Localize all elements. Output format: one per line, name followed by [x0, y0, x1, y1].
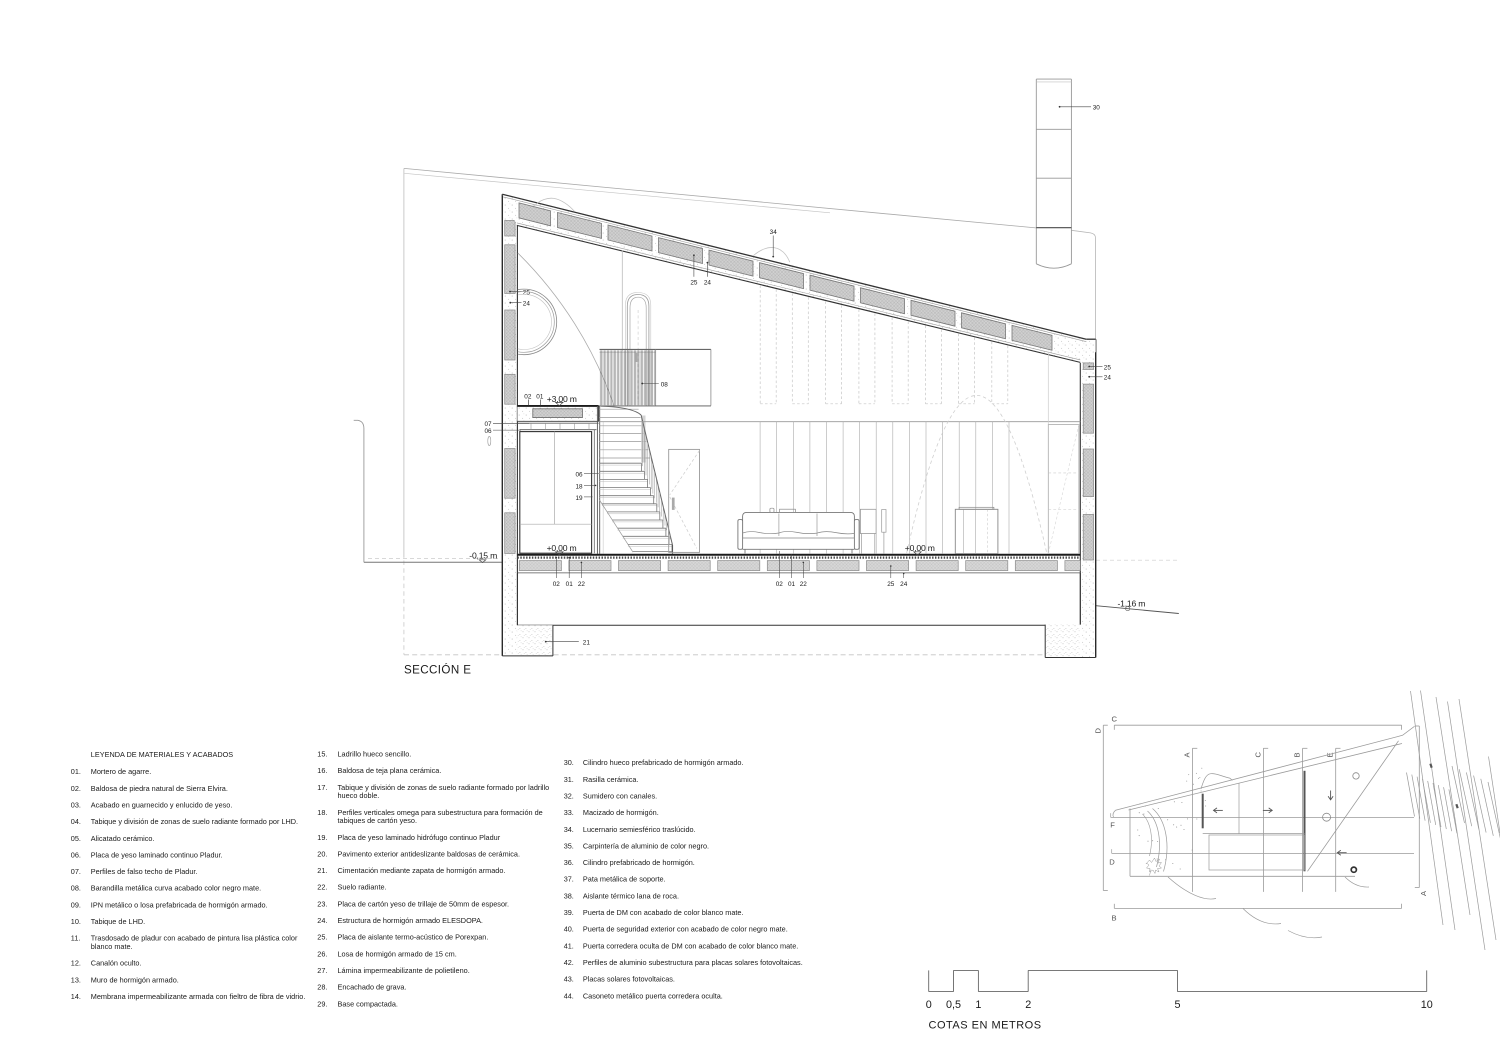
- svg-text:25: 25: [523, 289, 531, 296]
- svg-text:22: 22: [578, 581, 586, 588]
- svg-text:Sumidero con canales.: Sumidero con canales.: [583, 792, 657, 801]
- svg-text:Pata metálica de soporte.: Pata metálica de soporte.: [583, 875, 666, 884]
- svg-text:C: C: [1112, 715, 1118, 724]
- svg-text:40.: 40.: [564, 925, 574, 934]
- svg-text:19.: 19.: [317, 833, 327, 842]
- svg-text:03.: 03.: [71, 801, 81, 810]
- svg-text:Puerta de seguridad exterior c: Puerta de seguridad exterior con acabado…: [583, 925, 788, 934]
- svg-text:Suelo radiante.: Suelo radiante.: [338, 883, 387, 892]
- svg-text:Cilindro hueco prefabricado de: Cilindro hueco prefabricado de hormigón …: [583, 758, 744, 767]
- svg-text:D: D: [1094, 728, 1103, 734]
- svg-text:Muro de hormigón armado.: Muro de hormigón armado.: [91, 975, 179, 984]
- svg-text:21: 21: [583, 640, 591, 647]
- svg-text:Tabique y división de zonas de: Tabique y división de zonas de suelo rad…: [91, 817, 298, 826]
- svg-text:Perfiles de falso techo de Pla: Perfiles de falso techo de Pladur.: [91, 867, 198, 876]
- svg-text:30.: 30.: [564, 758, 574, 767]
- svg-text:44.: 44.: [564, 991, 574, 1000]
- svg-text:01: 01: [566, 581, 574, 588]
- svg-text:COTAS EN METROS: COTAS EN METROS: [929, 1020, 1042, 1032]
- svg-text:10.: 10.: [71, 917, 81, 926]
- svg-text:1: 1: [975, 999, 981, 1011]
- svg-text:Losa de hormigón armado de 15: Losa de hormigón armado de 15 cm.: [338, 949, 457, 958]
- svg-text:24: 24: [704, 279, 712, 286]
- svg-text:C: C: [1253, 752, 1262, 758]
- svg-text:09.: 09.: [71, 900, 81, 909]
- svg-text:24: 24: [900, 581, 908, 588]
- svg-text:02: 02: [553, 581, 561, 588]
- svg-text:04.: 04.: [71, 817, 81, 826]
- svg-text:Puerta corredera oculta de DM: Puerta corredera oculta de DM con acabad…: [583, 941, 798, 950]
- svg-text:Carpintería de aluminio de col: Carpintería de aluminio de color negro.: [583, 841, 709, 850]
- svg-text:22.: 22.: [317, 883, 327, 892]
- svg-text:28.: 28.: [317, 983, 327, 992]
- svg-text:Base compactada.: Base compactada.: [338, 999, 398, 1008]
- svg-text:Baldosa de teja plana cerámica: Baldosa de teja plana cerámica.: [338, 766, 442, 775]
- svg-text:Placa de yeso laminado hidrófu: Placa de yeso laminado hidrófugo continu…: [338, 833, 501, 842]
- svg-text:Membrana impermeabilizante arm: Membrana impermeabilizante armada con fi…: [91, 992, 306, 1001]
- svg-text:21.: 21.: [317, 866, 327, 875]
- svg-text:2: 2: [1025, 999, 1031, 1011]
- svg-text:13.: 13.: [71, 975, 81, 984]
- svg-text:17.: 17.: [317, 783, 327, 792]
- svg-text:39.: 39.: [564, 908, 574, 917]
- svg-text:25: 25: [1104, 364, 1112, 371]
- svg-text:01.: 01.: [71, 767, 81, 776]
- svg-text:Encachado de grava.: Encachado de grava.: [338, 983, 407, 992]
- svg-text:Mortero de agarre.: Mortero de agarre.: [91, 767, 151, 776]
- svg-text:22: 22: [800, 581, 808, 588]
- svg-text:Estructura de hormigón armado: Estructura de hormigón armado ELESDOPA.: [338, 916, 483, 925]
- svg-text:Pavimento exterior antidesliza: Pavimento exterior antideslizante baldos…: [338, 849, 521, 858]
- svg-text:Macizado de hormigón.: Macizado de hormigón.: [583, 808, 659, 817]
- svg-text:26.: 26.: [317, 949, 327, 958]
- svg-text:34: 34: [770, 229, 778, 236]
- svg-text:01: 01: [788, 581, 796, 588]
- svg-text:Placas solares fotovoltaicas.: Placas solares fotovoltaicas.: [583, 975, 675, 984]
- svg-text:Alicatado cerámico.: Alicatado cerámico.: [91, 834, 155, 843]
- svg-text:IPN metálico o losa prefabrica: IPN metálico o losa prefabricada de horm…: [91, 900, 268, 909]
- svg-text:-1,16 m: -1,16 m: [1118, 599, 1146, 609]
- svg-text:15.: 15.: [317, 750, 327, 759]
- svg-text:tabiques de cartón yeso.: tabiques de cartón yeso.: [338, 816, 418, 825]
- svg-text:27.: 27.: [317, 966, 327, 975]
- svg-text:02: 02: [776, 581, 784, 588]
- svg-text:B: B: [1293, 752, 1302, 757]
- svg-text:20.: 20.: [317, 849, 327, 858]
- svg-text:Casoneto metálico puerta corre: Casoneto metálico puerta corredera ocult…: [583, 991, 723, 1000]
- svg-text:F: F: [1110, 821, 1115, 830]
- svg-text:08.: 08.: [71, 884, 81, 893]
- svg-text:Canalón oculto.: Canalón oculto.: [91, 959, 142, 968]
- svg-text:19: 19: [575, 495, 583, 502]
- svg-text:10: 10: [1421, 999, 1433, 1011]
- svg-text:D: D: [1109, 858, 1115, 867]
- svg-text:SECCIÓN E: SECCIÓN E: [404, 664, 471, 677]
- svg-text:33.: 33.: [564, 808, 574, 817]
- svg-text:Baldosa de piedra natural de S: Baldosa de piedra natural de Sierra Elvi…: [91, 784, 228, 793]
- svg-text:Lámina impermeabilizante de po: Lámina impermeabilizante de polietileno.: [338, 966, 470, 975]
- svg-text:41.: 41.: [564, 941, 574, 950]
- svg-text:LEYENDA DE MATERIALES Y ACABAD: LEYENDA DE MATERIALES Y ACABADOS: [91, 750, 233, 759]
- svg-text:18: 18: [575, 483, 583, 490]
- svg-text:hueco doble.: hueco doble.: [338, 791, 380, 800]
- svg-text:Perfiles de aluminio subestruc: Perfiles de aluminio subestructura para …: [583, 958, 803, 967]
- svg-text:24.: 24.: [317, 916, 327, 925]
- svg-text:Puerta de DM con acabado de co: Puerta de DM con acabado de color blanco…: [583, 908, 744, 917]
- svg-text:Cimentación mediante zapata de: Cimentación mediante zapata de hormigón …: [338, 866, 506, 875]
- svg-text:30: 30: [1093, 105, 1101, 112]
- svg-text:42.: 42.: [564, 958, 574, 967]
- svg-text:11.: 11.: [71, 934, 81, 943]
- svg-text:5: 5: [1174, 999, 1180, 1011]
- svg-text:-0,15 m: -0,15 m: [469, 551, 497, 561]
- svg-text:14.: 14.: [71, 992, 81, 1001]
- svg-text:25: 25: [690, 279, 698, 286]
- svg-text:16.: 16.: [317, 766, 327, 775]
- svg-text:Placa de aislante termo-acústi: Placa de aislante termo-acústico de Pore…: [338, 933, 489, 942]
- svg-text:02: 02: [524, 394, 532, 401]
- svg-text:12.: 12.: [71, 959, 81, 968]
- svg-text:05.: 05.: [71, 834, 81, 843]
- svg-text:Lucernario semiesférico traslú: Lucernario semiesférico traslúcido.: [583, 825, 696, 834]
- svg-text:Acabado en guarnecido y enluci: Acabado en guarnecido y enlucido de yeso…: [91, 801, 233, 810]
- svg-text:Rasilla cerámica.: Rasilla cerámica.: [583, 775, 639, 784]
- svg-text:29.: 29.: [317, 999, 327, 1008]
- svg-text:Barandilla metálica curva acab: Barandilla metálica curva acabado color …: [91, 884, 261, 893]
- svg-text:06: 06: [575, 472, 583, 479]
- svg-text:B: B: [1112, 914, 1117, 923]
- svg-text:01: 01: [536, 394, 544, 401]
- svg-text:Aislante térmico lana de roca.: Aislante térmico lana de roca.: [583, 891, 679, 900]
- svg-text:34.: 34.: [564, 825, 574, 834]
- svg-text:Placa de cartón yeso de trilla: Placa de cartón yeso de trillaje de 50mm…: [338, 899, 510, 908]
- svg-text:Placa de yeso laminado continu: Placa de yeso laminado continuo Pladur.: [91, 850, 223, 859]
- svg-text:07.: 07.: [71, 867, 81, 876]
- svg-text:0,5: 0,5: [946, 999, 961, 1011]
- svg-text:blanco mate.: blanco mate.: [91, 942, 133, 951]
- svg-text:25.: 25.: [317, 933, 327, 942]
- svg-text:24: 24: [523, 301, 531, 308]
- svg-text:31.: 31.: [564, 775, 574, 784]
- svg-text:0: 0: [926, 999, 932, 1011]
- svg-text:25: 25: [887, 581, 895, 588]
- svg-text:06: 06: [484, 428, 492, 435]
- svg-text:38.: 38.: [564, 891, 574, 900]
- svg-text:Tabique de LHD.: Tabique de LHD.: [91, 917, 145, 926]
- svg-text:06.: 06.: [71, 850, 81, 859]
- svg-text:18.: 18.: [317, 808, 327, 817]
- svg-text:Cilindro prefabricado de hormi: Cilindro prefabricado de hormigón.: [583, 858, 695, 867]
- svg-text:02.: 02.: [71, 784, 81, 793]
- svg-text:35.: 35.: [564, 841, 574, 850]
- svg-text:36.: 36.: [564, 858, 574, 867]
- svg-text:23.: 23.: [317, 899, 327, 908]
- svg-text:Ladrillo hueco sencillo.: Ladrillo hueco sencillo.: [338, 750, 412, 759]
- svg-text:32.: 32.: [564, 792, 574, 801]
- svg-text:37.: 37.: [564, 875, 574, 884]
- svg-text:43.: 43.: [564, 975, 574, 984]
- svg-text:08: 08: [661, 381, 669, 388]
- svg-text:24: 24: [1104, 375, 1112, 382]
